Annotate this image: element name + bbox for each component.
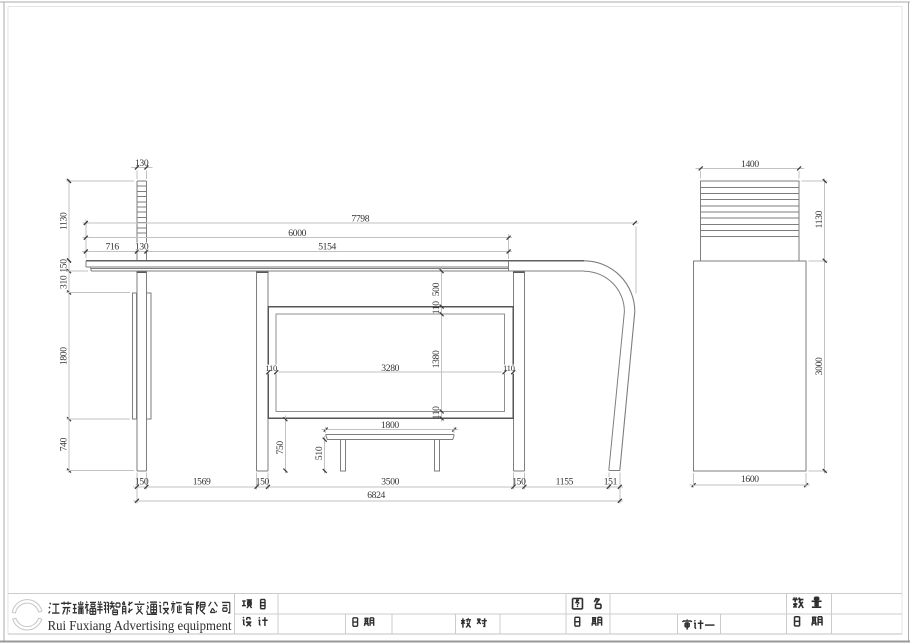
svg-text:1800: 1800 — [58, 347, 69, 365]
svg-text:110: 110 — [431, 406, 442, 420]
svg-text:1155: 1155 — [556, 476, 574, 487]
svg-text:3500: 3500 — [381, 476, 399, 487]
svg-text:6824: 6824 — [367, 490, 385, 501]
svg-text:7798: 7798 — [351, 213, 369, 224]
svg-text:1569: 1569 — [193, 476, 211, 487]
svg-text:110: 110 — [265, 363, 277, 373]
svg-text:1380: 1380 — [431, 350, 442, 368]
svg-text:1600: 1600 — [741, 474, 759, 485]
svg-text:1130: 1130 — [58, 212, 69, 230]
svg-text:1400: 1400 — [741, 159, 759, 170]
svg-text:500: 500 — [431, 282, 442, 296]
svg-text:3280: 3280 — [381, 363, 399, 374]
svg-text:150: 150 — [58, 259, 69, 273]
svg-text:5154: 5154 — [318, 241, 336, 252]
svg-text:740: 740 — [58, 437, 69, 451]
svg-text:130: 130 — [135, 241, 149, 252]
svg-text:151: 151 — [604, 476, 618, 487]
svg-text:110: 110 — [431, 301, 442, 315]
svg-text:3000: 3000 — [814, 357, 825, 375]
svg-text:150: 150 — [512, 476, 526, 487]
svg-text:1130: 1130 — [814, 210, 825, 228]
svg-text:150: 150 — [256, 476, 270, 487]
svg-text:310: 310 — [58, 275, 69, 289]
svg-text:110: 110 — [503, 363, 515, 373]
svg-text:Rui Fuxiang Advertising equipm: Rui Fuxiang Advertising equipment — [48, 619, 232, 634]
svg-text:716: 716 — [106, 241, 120, 252]
svg-text:750: 750 — [275, 441, 286, 455]
svg-text:150: 150 — [135, 476, 149, 487]
svg-text:6000: 6000 — [288, 228, 306, 239]
svg-text:130: 130 — [135, 158, 149, 169]
svg-text:510: 510 — [314, 446, 325, 460]
svg-text:1800: 1800 — [381, 420, 399, 431]
